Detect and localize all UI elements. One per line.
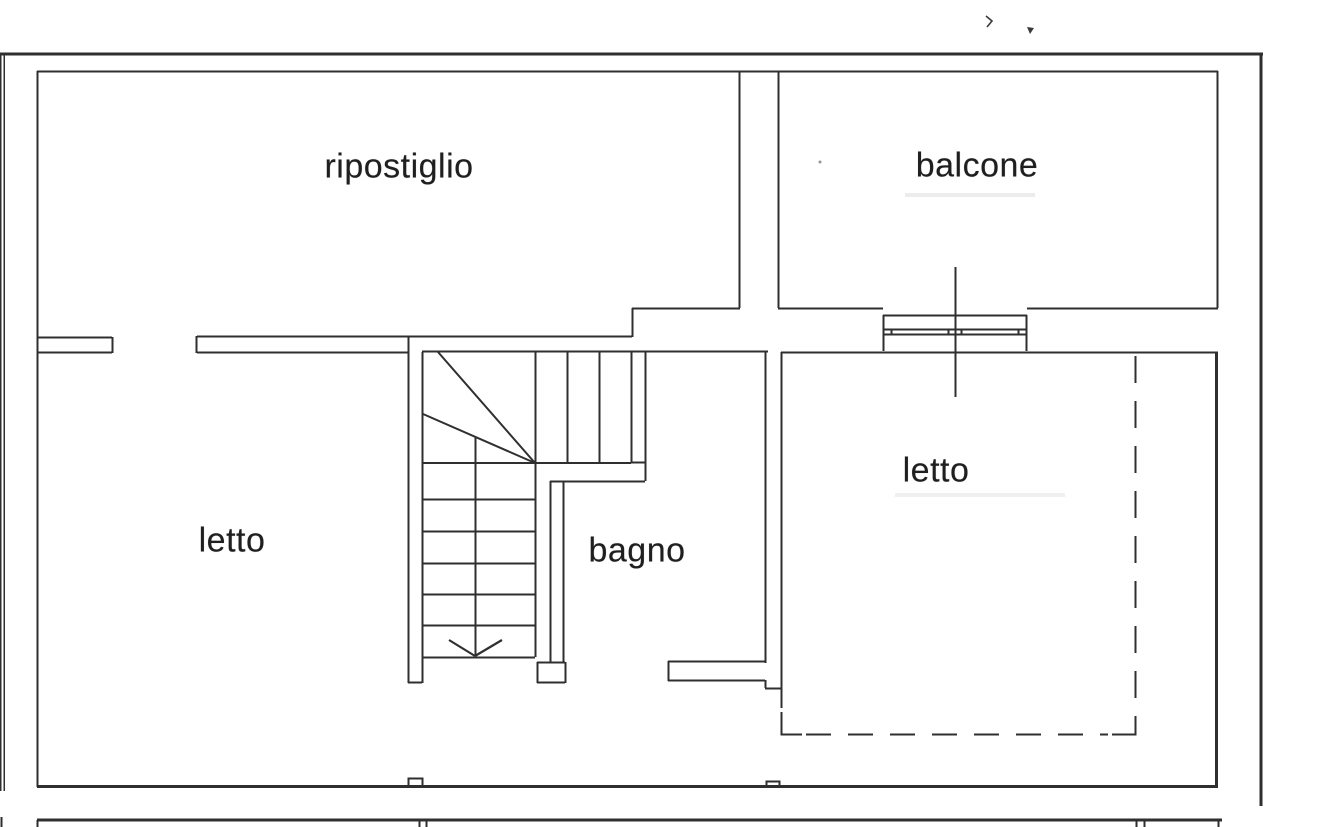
room-label-ripostiglio: ripostiglio xyxy=(324,148,473,187)
scan-artifacts xyxy=(819,16,1066,497)
partition-walls xyxy=(37,71,1218,787)
room-label-letto-right: letto xyxy=(903,452,970,491)
lower-drawing-edge xyxy=(2,817,1223,827)
room-label-balcone: balcone xyxy=(916,147,1039,186)
room-label-bagno: bagno xyxy=(588,532,685,571)
floorplan-page: ripostiglio balcone letto bagno letto xyxy=(0,0,1325,827)
stairs-direction-arrow xyxy=(449,437,502,656)
floorplan-drawing xyxy=(0,0,1325,827)
stairs xyxy=(408,337,646,683)
room-label-letto-left: letto xyxy=(199,522,266,561)
dashed-projection-outline xyxy=(782,356,1136,735)
stairs-break-lines xyxy=(423,352,535,463)
